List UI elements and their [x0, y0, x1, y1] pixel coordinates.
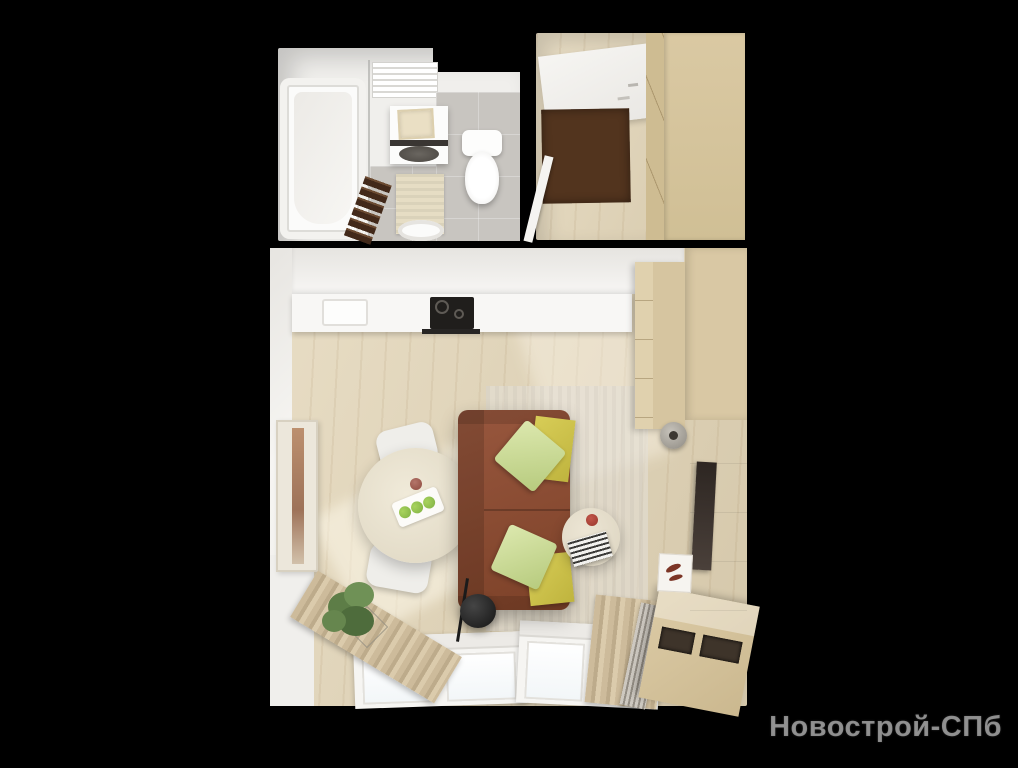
- storage-unit-front: [635, 262, 653, 429]
- wardrobe-front: [646, 33, 664, 240]
- bathroom: [278, 48, 520, 241]
- doormat: [541, 108, 631, 204]
- cooktop: [430, 297, 474, 329]
- washing-machine-drum: [399, 146, 439, 162]
- oven-vent: [422, 329, 480, 334]
- washing-machine: [390, 106, 448, 164]
- kitchen-sink: [322, 299, 368, 326]
- corner-wall: [270, 555, 314, 706]
- towel-radiator: [372, 62, 438, 98]
- toilet: [460, 130, 504, 210]
- burner: [435, 300, 449, 314]
- door-hinge: [617, 96, 629, 100]
- cup: [410, 478, 422, 490]
- hallway: [536, 33, 745, 240]
- picture-frame: [276, 420, 318, 572]
- plant-leaves: [322, 610, 346, 632]
- right-wall: [685, 248, 747, 420]
- laundry-basket: [397, 108, 435, 140]
- watermark: Новострой-СПб: [769, 711, 1002, 744]
- bench-shelf-opening: [699, 635, 742, 664]
- fish-decor: [668, 573, 683, 582]
- storage-unit: [635, 262, 685, 429]
- clock-center: [669, 431, 678, 440]
- living-room: [270, 248, 747, 706]
- kitchen-counter: [292, 294, 632, 332]
- bathroom-sink: [398, 220, 444, 241]
- potted-plant: [322, 582, 380, 644]
- floorplan-render: Новострой-СПб: [0, 0, 1018, 768]
- picture-art: [292, 428, 304, 564]
- book-stack: [567, 531, 613, 567]
- fruit-tray: [391, 486, 445, 528]
- wall-notch: [433, 48, 520, 72]
- floor-lamp-shade: [460, 594, 496, 628]
- apple: [421, 495, 437, 511]
- plant-leaves: [344, 582, 374, 608]
- sofa-backrest: [458, 410, 484, 610]
- dining-table: [358, 448, 473, 563]
- door-hinge: [628, 83, 638, 87]
- mug: [586, 514, 598, 526]
- side-table: [562, 508, 620, 566]
- bench-shelf-opening: [658, 627, 696, 655]
- burner: [454, 309, 464, 319]
- kitchen-upper-cabinets: [292, 248, 684, 294]
- window-glass: [524, 641, 585, 702]
- wardrobe: [664, 33, 745, 240]
- decor-niche: [657, 553, 693, 593]
- sofa: [458, 410, 570, 610]
- bathtub-basin: [294, 92, 352, 224]
- wall-clock: [660, 422, 687, 449]
- toilet-bowl: [465, 152, 499, 204]
- fish-decor: [665, 562, 682, 574]
- sofa-cushion-seam: [484, 509, 570, 511]
